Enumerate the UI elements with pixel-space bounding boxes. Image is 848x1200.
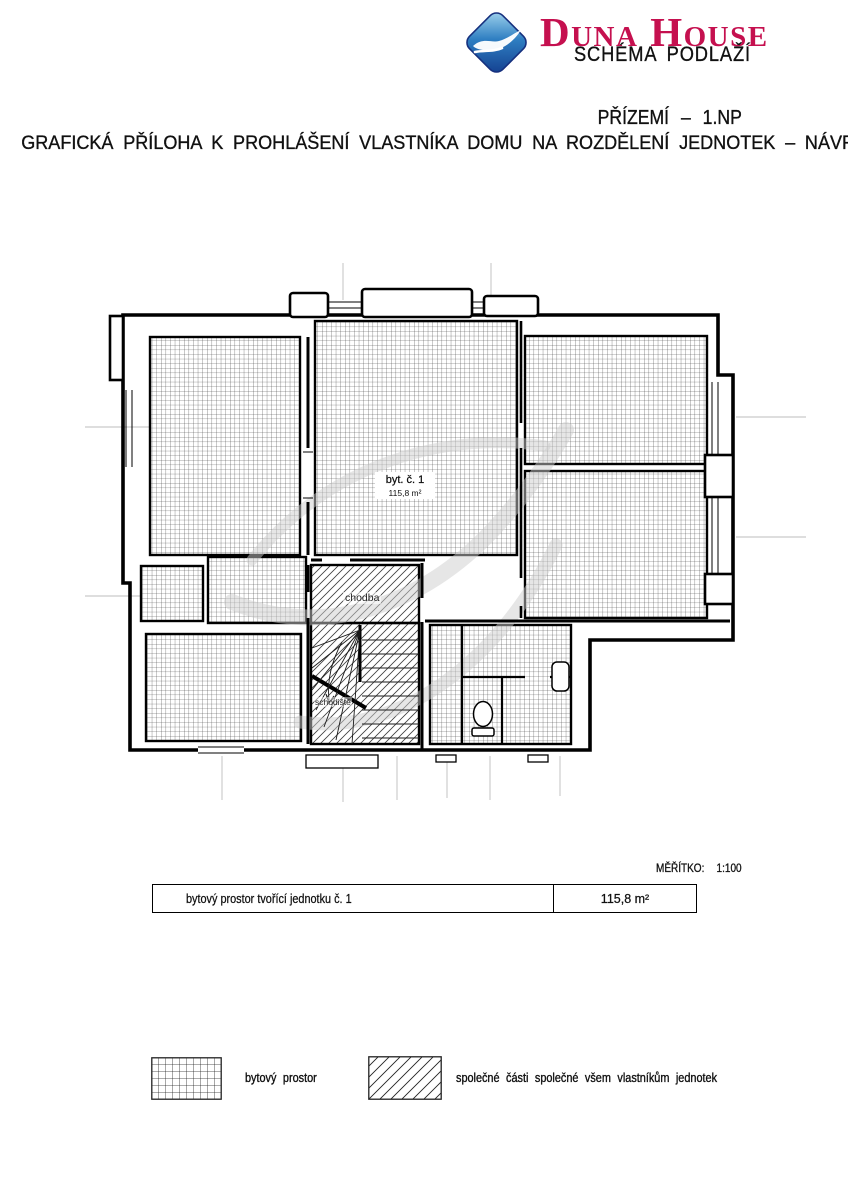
room-bottom-left bbox=[146, 634, 301, 741]
duna-house-logo-icon bbox=[460, 4, 534, 80]
room-mid-left-small bbox=[141, 566, 203, 621]
table-row-description: bytový prostor tvořící jednotku č. 1 bbox=[153, 885, 553, 912]
corridor-label: chodba bbox=[343, 592, 381, 604]
sink-icon bbox=[552, 662, 569, 691]
unit-area-value: 115,8 m² bbox=[601, 892, 649, 906]
scale-value: 1:100 bbox=[717, 863, 742, 875]
schema-title: SCHÉMA PODLAŽÍ bbox=[574, 43, 751, 67]
floor-plan-drawing bbox=[0, 260, 848, 810]
unit-label: byt. č. 1 bbox=[375, 474, 435, 488]
scale-label: MĚŘÍTKO: bbox=[656, 863, 704, 875]
toilet-tank bbox=[472, 728, 494, 736]
legend-grid-hatch-swatch bbox=[151, 1057, 222, 1100]
floor-title: PŘÍZEMÍ – 1.NP bbox=[598, 107, 742, 130]
unit-description: bytový prostor tvořící jednotku č. 1 bbox=[186, 892, 352, 906]
staircase-label: schodiště bbox=[314, 697, 352, 707]
legend-label-apartment: bytový prostor bbox=[245, 1071, 317, 1085]
entrance-steps bbox=[306, 755, 548, 768]
legend-diagonal-hatch-swatch bbox=[368, 1056, 442, 1100]
toilet-icon bbox=[474, 702, 493, 727]
legend-label-common-areas: společné části společné všem vlastníkům … bbox=[456, 1071, 717, 1085]
floor-plan-document: Duna House SCHÉMA PODLAŽÍ PŘÍZEMÍ – 1.NP… bbox=[0, 0, 848, 1200]
unit-area-label: 115,8 m² bbox=[375, 488, 435, 499]
unit-label-box: byt. č. 1 115,8 m² bbox=[375, 472, 435, 499]
apartment-rooms bbox=[141, 321, 707, 744]
room-top-left bbox=[150, 337, 300, 555]
unit-summary-table: bytový prostor tvořící jednotku č. 1 115… bbox=[152, 884, 697, 913]
scale-note: MĚŘÍTKO: 1:100 bbox=[656, 863, 742, 875]
document-subtitle: GRAFICKÁ PŘÍLOHA K PROHLÁŠENÍ VLASTNÍKA … bbox=[21, 133, 827, 155]
table-row-area: 115,8 m² bbox=[553, 885, 696, 912]
